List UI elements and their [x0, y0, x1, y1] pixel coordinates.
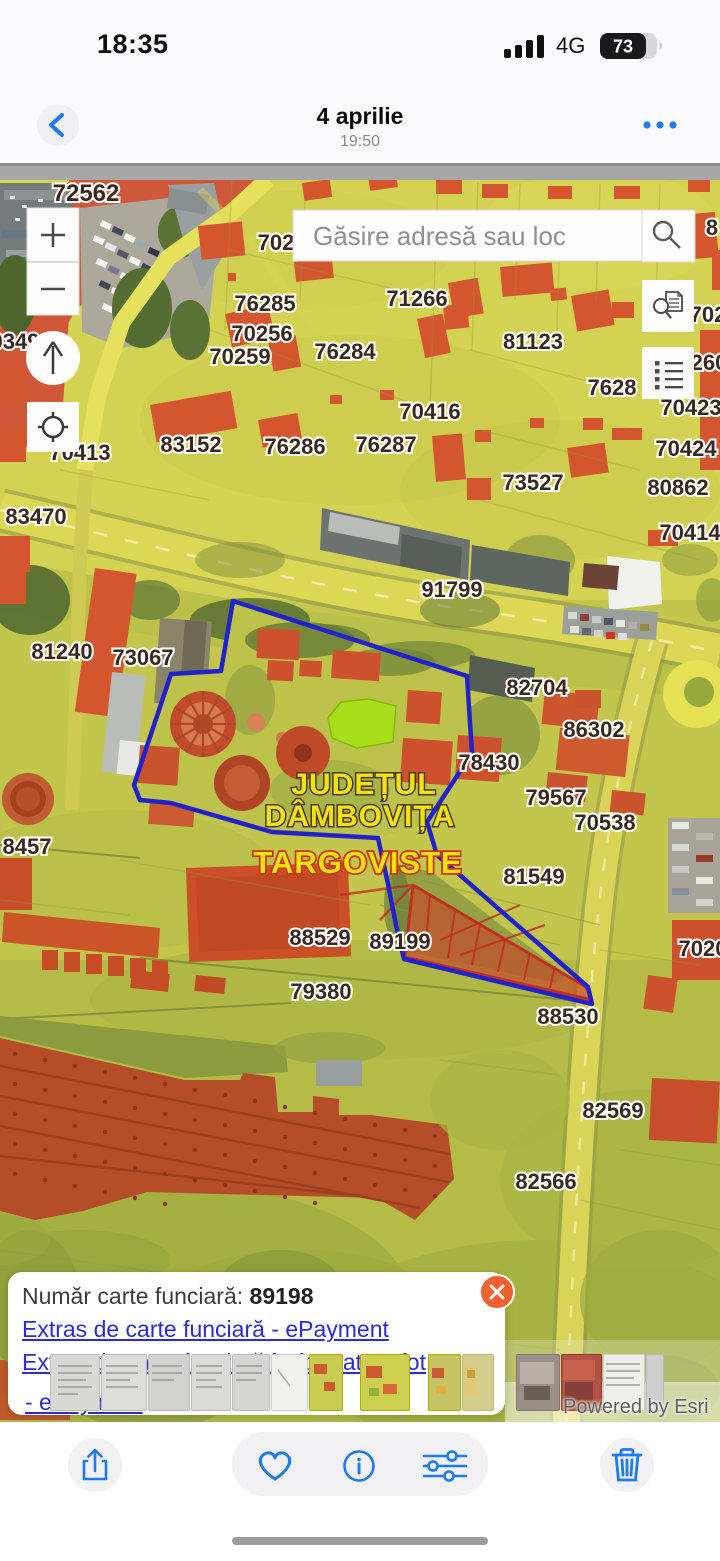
svg-text:83470: 83470	[5, 504, 66, 529]
svg-text:78430: 78430	[458, 750, 519, 775]
svg-text:70256: 70256	[231, 321, 292, 346]
svg-text:73067: 73067	[112, 645, 173, 670]
svg-text:76286: 76286	[264, 434, 325, 459]
svg-text:82566: 82566	[515, 1169, 576, 1194]
svg-text:7628: 7628	[588, 375, 637, 400]
svg-text:73527: 73527	[502, 470, 563, 495]
svg-text:Găsire adresă sau loc: Găsire adresă sau loc	[313, 221, 566, 251]
svg-text:73: 73	[613, 37, 633, 57]
svg-text:76285: 76285	[234, 291, 295, 316]
svg-text:83152: 83152	[160, 432, 221, 457]
svg-text:71266: 71266	[386, 286, 447, 311]
svg-text:8: 8	[706, 215, 718, 240]
svg-text:89199: 89199	[369, 929, 430, 954]
svg-text:702: 702	[258, 230, 295, 255]
svg-text:76287: 76287	[355, 432, 416, 457]
svg-text:86302: 86302	[563, 717, 624, 742]
svg-text:76284: 76284	[314, 339, 376, 364]
svg-text:70424: 70424	[655, 436, 717, 461]
svg-text:70414: 70414	[659, 520, 720, 545]
svg-text:79567: 79567	[525, 785, 586, 810]
svg-text:81240: 81240	[31, 639, 92, 664]
svg-text:79380: 79380	[290, 979, 351, 1004]
svg-text:DÂMBOVIȚA: DÂMBOVIȚA	[265, 799, 456, 833]
svg-text:70416: 70416	[399, 399, 460, 424]
svg-text:72562: 72562	[53, 180, 120, 207]
svg-text:91799: 91799	[421, 577, 482, 602]
svg-text:702: 702	[690, 302, 720, 327]
svg-text:81549: 81549	[503, 864, 564, 889]
svg-text:70538: 70538	[574, 810, 635, 835]
svg-text:TARGOVISTE: TARGOVISTE	[253, 845, 462, 880]
svg-text:80862: 80862	[647, 475, 708, 500]
svg-text:81123: 81123	[503, 329, 563, 354]
svg-text:JUDEȚUL: JUDEȚUL	[291, 768, 436, 801]
svg-text:88529: 88529	[289, 925, 350, 950]
svg-text:82569: 82569	[582, 1098, 643, 1123]
svg-text:82704: 82704	[506, 675, 568, 700]
svg-text:88530: 88530	[537, 1004, 598, 1029]
svg-text:70259: 70259	[209, 344, 270, 369]
svg-text:7020: 7020	[679, 936, 720, 961]
svg-text:260: 260	[691, 350, 720, 375]
svg-text:8457: 8457	[3, 834, 52, 859]
